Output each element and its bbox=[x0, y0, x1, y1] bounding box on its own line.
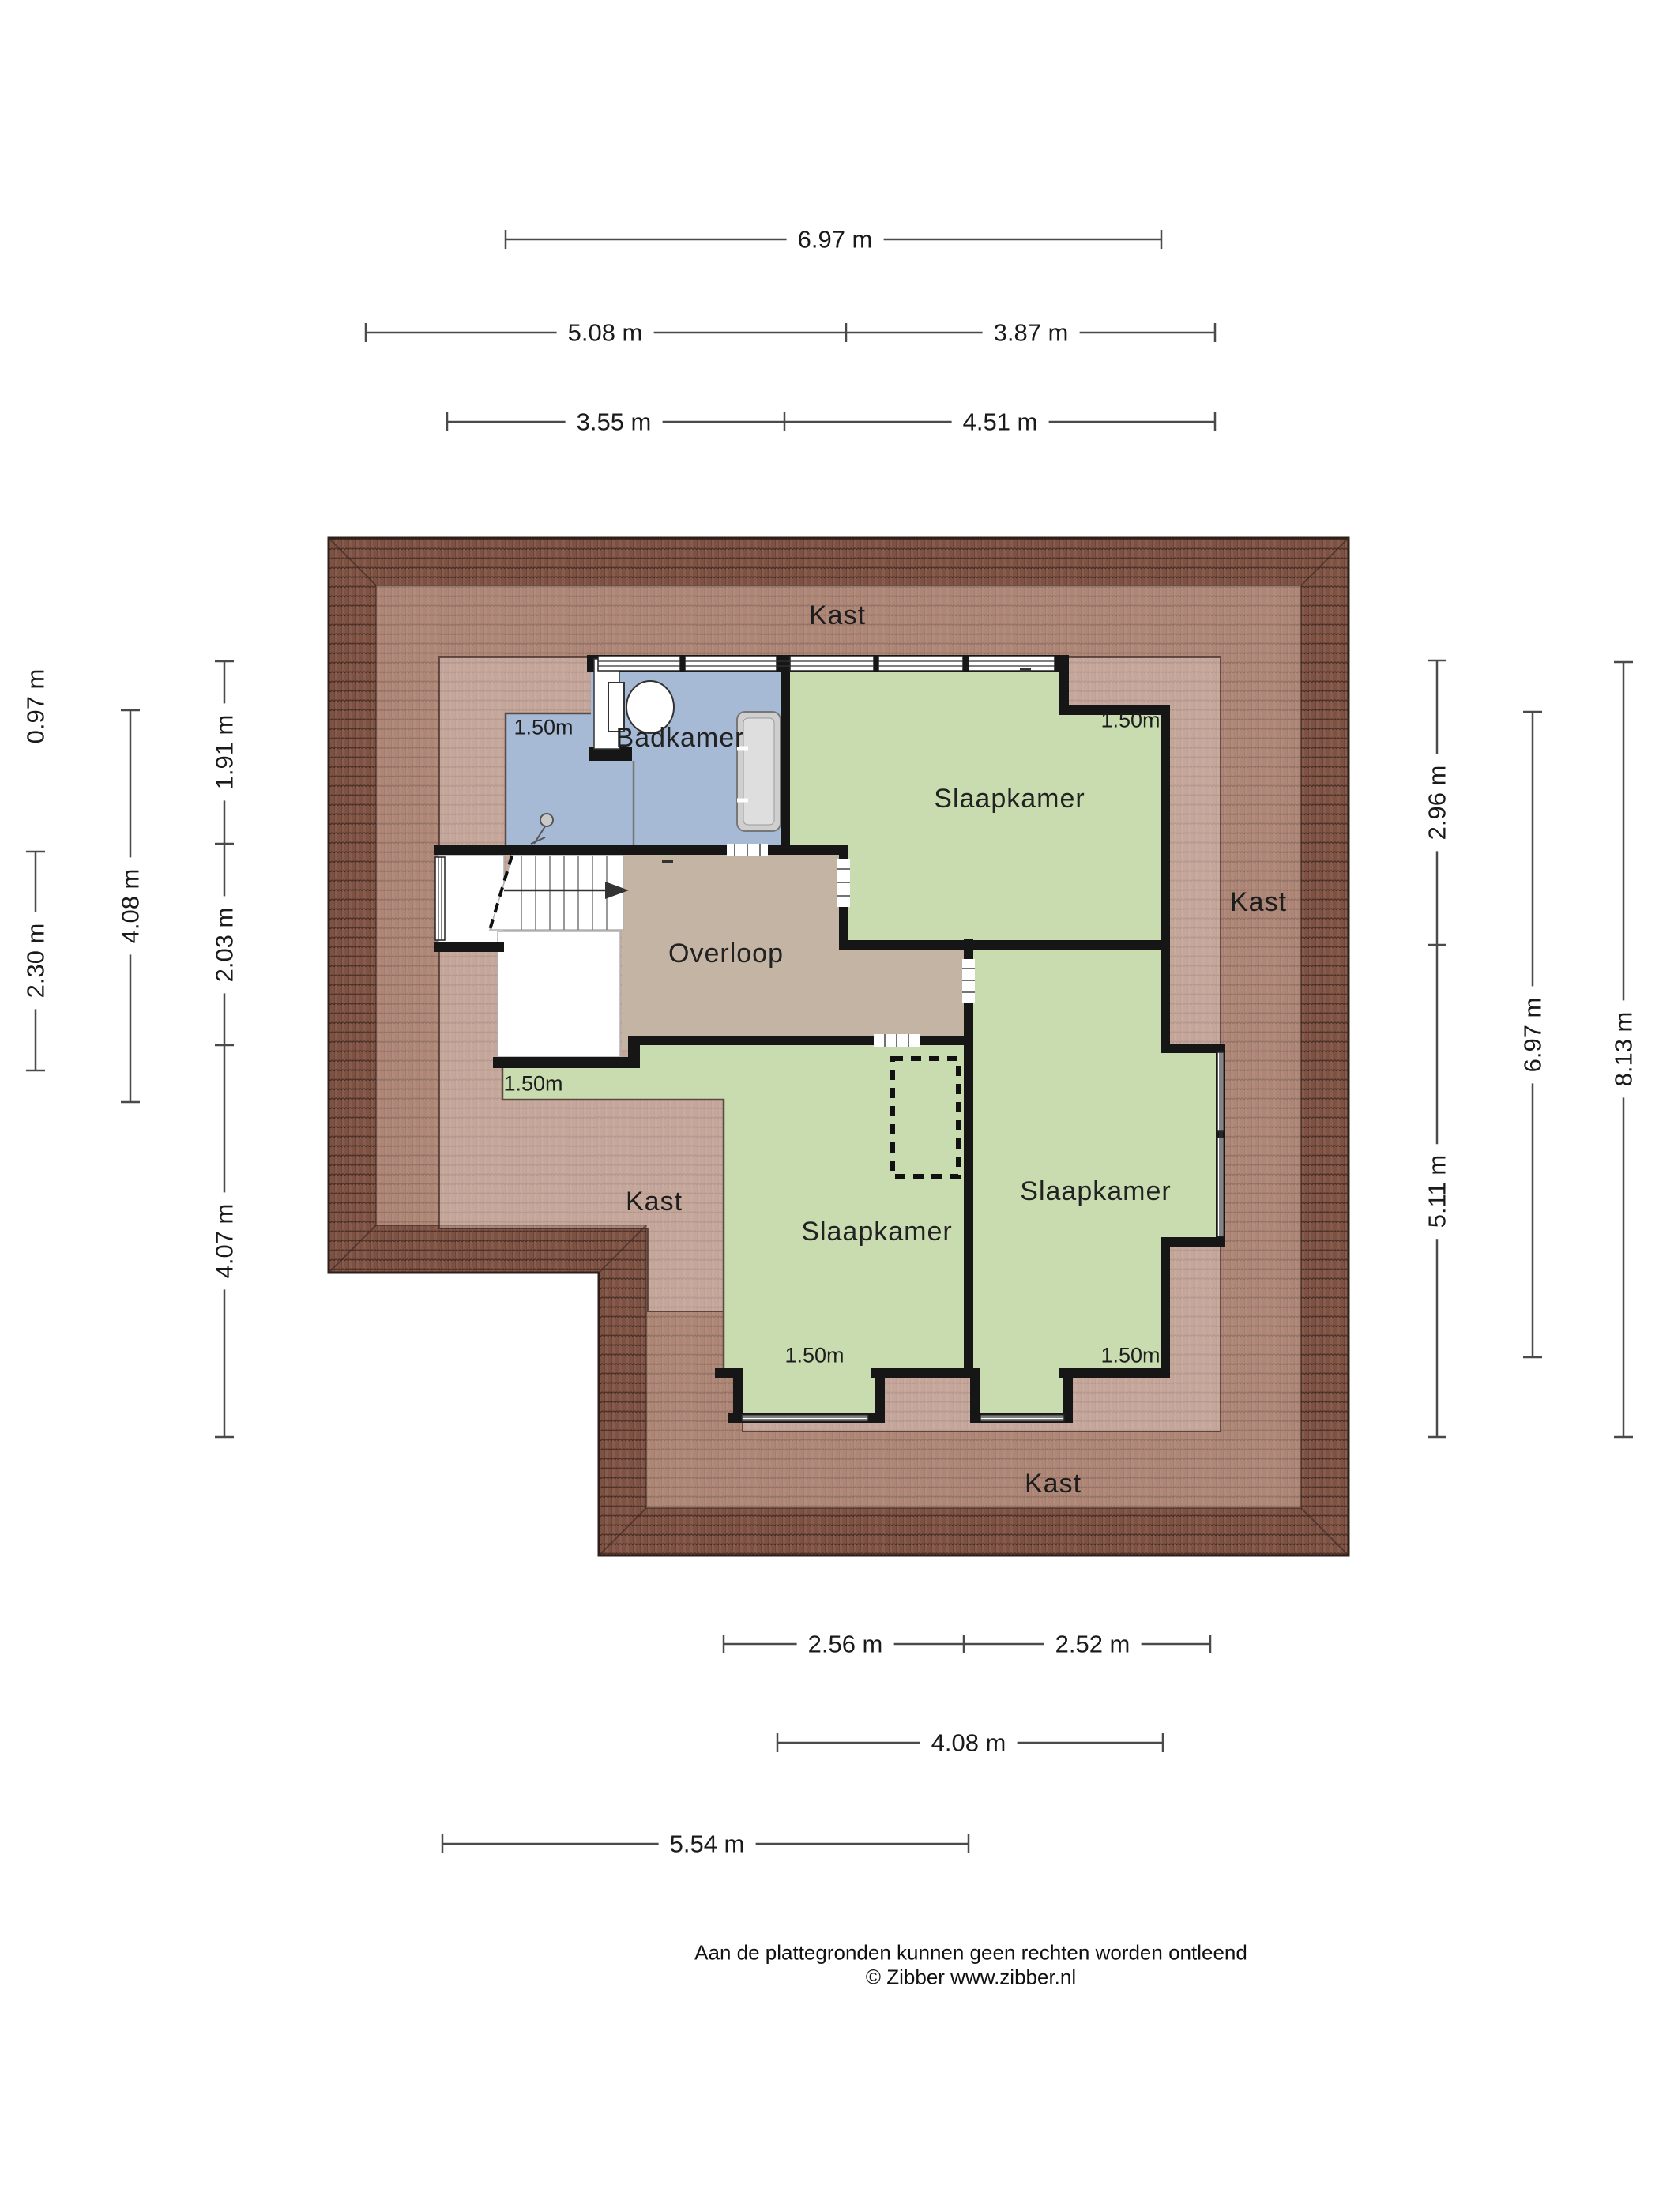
room-label-slaapkamer-bottommiddle: Slaapkamer bbox=[801, 1218, 952, 1245]
room-label-slaapkamer-bottomright: Slaapkamer bbox=[1020, 1178, 1171, 1205]
stair-landing-window bbox=[435, 857, 445, 940]
dim-top-697: 6.97 m bbox=[787, 225, 884, 254]
knee-label-bottommiddle: 1.50m bbox=[784, 1345, 844, 1367]
room-label-badkamer: Badkamer bbox=[616, 724, 745, 751]
closet-label-top: Kast bbox=[809, 602, 866, 629]
dim-left-097: 0.97 m bbox=[21, 658, 51, 755]
dim-left-408: 4.08 m bbox=[116, 858, 145, 955]
dim-right-511: 5.11 m bbox=[1423, 1144, 1452, 1239]
vent-mark-2 bbox=[662, 860, 673, 863]
dim-left-203: 2.03 m bbox=[210, 897, 239, 994]
door-overloop-topright bbox=[837, 859, 850, 907]
knee-label-bottomright: 1.50m bbox=[1100, 1345, 1160, 1367]
dim-bottom-252: 2.52 m bbox=[1044, 1630, 1142, 1659]
dim-right-697: 6.97 m bbox=[1518, 987, 1548, 1084]
right-dormer-windows bbox=[1217, 1052, 1224, 1236]
floorplan-page: Badkamer Slaapkamer Overloop Slaapkamer … bbox=[0, 0, 1659, 2212]
room-label-overloop: Overloop bbox=[668, 940, 784, 967]
footer-copyright: © Zibber www.zibber.nl bbox=[866, 1966, 1076, 1990]
door-overloop-bottomright bbox=[962, 959, 975, 1003]
stair-void bbox=[498, 931, 620, 1057]
dim-bottom-554: 5.54 m bbox=[659, 1830, 756, 1859]
dim-left-191: 1.91 m bbox=[210, 704, 239, 801]
floorplan-graphic bbox=[0, 0, 1659, 2212]
knee-label-middleleft: 1.50m bbox=[503, 1074, 562, 1095]
dim-bottom-256: 2.56 m bbox=[797, 1630, 894, 1659]
dim-top-387: 3.87 m bbox=[983, 318, 1080, 348]
door-overloop-bottommiddle bbox=[874, 1034, 920, 1047]
stairs bbox=[490, 855, 623, 930]
door-badkamer-overloop bbox=[727, 844, 768, 856]
dim-right-296: 2.96 m bbox=[1423, 754, 1452, 852]
dim-bottom-408: 4.08 m bbox=[920, 1729, 1018, 1758]
vent-mark bbox=[1020, 668, 1031, 671]
footer-disclaimer: Aan de plattegronden kunnen geen rechten… bbox=[694, 1941, 1247, 1966]
dim-top-355: 3.55 m bbox=[566, 408, 663, 437]
closet-label-bottom: Kast bbox=[1025, 1470, 1082, 1497]
knee-label-badkamer: 1.50m bbox=[513, 717, 573, 739]
closet-label-bottomleft: Kast bbox=[626, 1188, 683, 1215]
dim-top-451: 4.51 m bbox=[952, 408, 1049, 437]
dim-left-407: 4.07 m bbox=[210, 1193, 239, 1290]
room-label-slaapkamer-topright: Slaapkamer bbox=[934, 785, 1085, 812]
knee-label-topright: 1.50m bbox=[1100, 710, 1160, 732]
dim-right-813: 8.13 m bbox=[1609, 1001, 1638, 1098]
dim-top-508: 5.08 m bbox=[557, 318, 654, 348]
dim-left-230: 2.30 m bbox=[21, 912, 51, 1010]
closet-label-right: Kast bbox=[1230, 889, 1287, 916]
top-wall-windows bbox=[598, 655, 1055, 672]
